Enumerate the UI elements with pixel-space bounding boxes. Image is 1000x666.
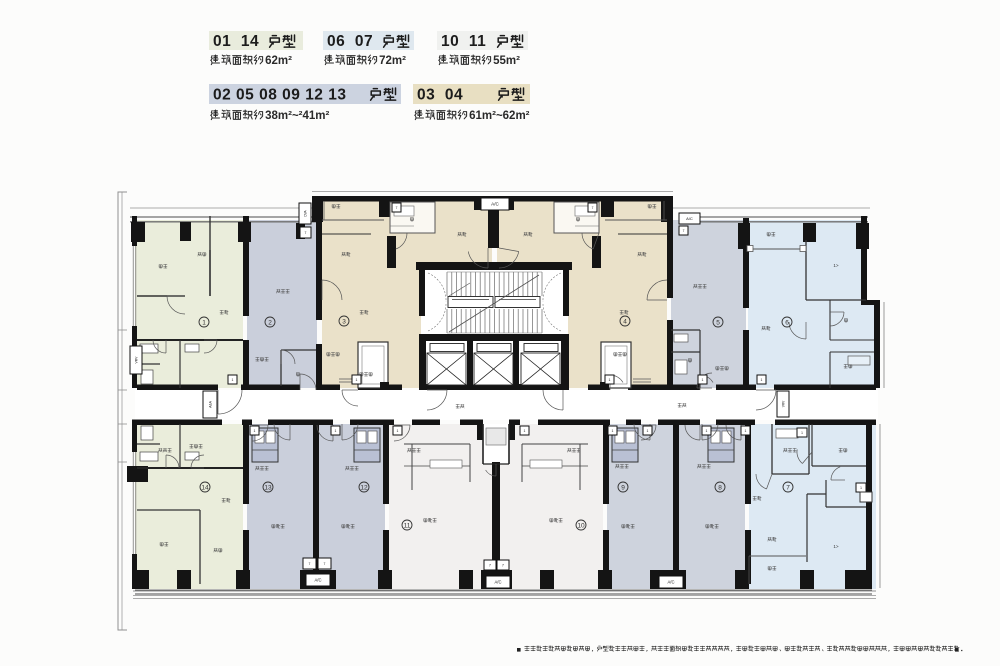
svg-text:1: 1 [397,429,399,433]
svg-text:7: 7 [324,562,326,566]
svg-text:1: 1 [356,378,358,382]
svg-text:1: 1 [801,431,803,435]
svg-text:1: 1 [745,429,747,433]
svg-text:55m²: 55m² [493,55,520,67]
svg-text:A/C: A/C [491,201,499,206]
svg-text:1: 1 [761,378,763,382]
svg-text:VRV: VRV [134,356,138,364]
svg-text:A&A: A&A [208,400,212,408]
svg-text:1: 1 [706,429,708,433]
svg-text:01 14: 01 14 [213,33,259,50]
svg-text:1: 1 [524,429,526,433]
svg-text:1: 1 [335,429,337,433]
svg-text:38m²~²41m²: 38m²~²41m² [265,110,329,122]
svg-text:62m²: 62m² [265,55,292,67]
svg-text:1: 1 [702,378,704,382]
svg-text:VRV: VRV [781,400,785,407]
svg-text:7: 7 [396,206,398,210]
svg-text:DVA: DVA [303,209,307,216]
svg-text:10 11: 10 11 [441,33,486,50]
svg-text:1: 1 [254,429,256,433]
svg-text:11: 11 [404,522,411,529]
svg-text:3: 3 [342,318,346,325]
svg-text:6: 6 [785,319,789,326]
svg-text:8: 8 [718,484,722,491]
svg-text:14: 14 [201,484,209,491]
svg-text:A/C: A/C [668,579,675,584]
svg-text:1>: 1> [833,544,839,549]
svg-text:72m²: 72m² [379,55,406,67]
svg-text:A/C: A/C [315,577,322,582]
svg-text:12: 12 [360,484,368,491]
svg-text:7: 7 [305,231,307,235]
svg-text:13: 13 [264,484,272,491]
svg-text:1: 1 [609,378,611,382]
svg-text:5: 5 [716,319,720,326]
svg-text:7: 7 [502,563,504,567]
svg-text:7: 7 [683,229,685,233]
svg-text:A/C: A/C [686,216,693,221]
svg-text:1: 1 [612,429,614,433]
svg-text:1: 1 [860,486,862,490]
svg-text:10: 10 [577,522,585,529]
svg-text:7: 7 [786,484,790,491]
svg-text:02 05 08 09 12 13: 02 05 08 09 12 13 [213,87,346,104]
svg-text:1: 1 [232,378,234,382]
svg-text:1: 1 [647,429,649,433]
svg-text:7: 7 [309,562,311,566]
svg-text:A/C: A/C [495,579,502,584]
svg-text:06 07: 06 07 [327,33,373,50]
svg-text:4: 4 [623,318,627,325]
svg-text:1: 1 [202,319,206,326]
svg-text:2: 2 [268,319,272,326]
svg-text:7: 7 [489,563,491,567]
svg-text:03 04: 03 04 [417,87,463,104]
svg-text:9: 9 [621,484,625,491]
svg-text:7: 7 [592,206,594,210]
svg-text:1>: 1> [833,263,839,268]
svg-text:61m²~62m²: 61m²~62m² [469,110,530,122]
